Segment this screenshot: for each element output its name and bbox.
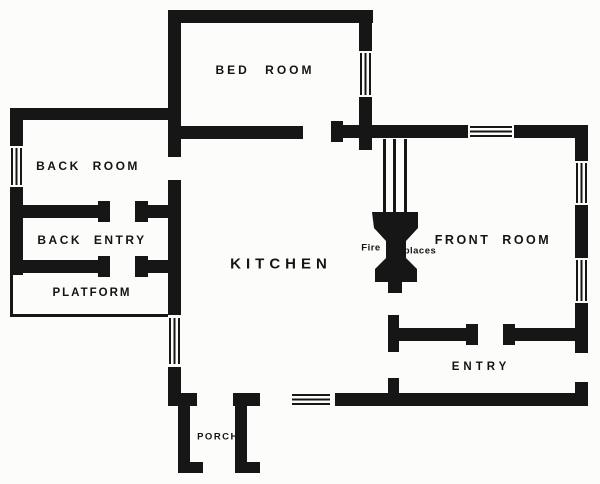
window-symbol: [468, 125, 514, 138]
room-label-entry: ENTRY: [452, 361, 511, 373]
wall-segment: [503, 328, 576, 341]
room-label-front-room: FRONT ROOM: [435, 233, 551, 247]
chimney-flue-lines: [383, 139, 407, 213]
window-symbol: [359, 51, 372, 97]
wall-segment: [10, 108, 181, 120]
room-label-back-room: BACK ROOM: [36, 159, 140, 173]
wall-segment: [575, 382, 588, 406]
wall-segment: [168, 393, 197, 406]
room-label-back-entry: BACK ENTRY: [37, 233, 146, 247]
porch-wall: [235, 393, 247, 462]
room-label-porch: PORCH: [197, 432, 239, 443]
door-jamb: [98, 256, 110, 277]
window-symbol: [10, 146, 23, 187]
door-jamb: [466, 324, 478, 345]
platform-edge: [10, 314, 170, 317]
floor-plan: BED ROOM BACK ROOM BACK ENTRY PLATFORM K…: [0, 0, 600, 484]
wall-segment: [168, 126, 303, 139]
door-jamb: [98, 201, 110, 222]
window-symbol: [575, 258, 588, 303]
fireplace-label-left: Fire: [361, 243, 380, 254]
windows: [10, 51, 588, 405]
platform-edge: [10, 275, 13, 317]
window-symbol: [292, 394, 330, 405]
wall-segment: [168, 10, 373, 23]
wall-segment: [10, 260, 110, 273]
porch-wall: [178, 462, 203, 473]
wall-segment: [331, 125, 588, 138]
wall-segment: [168, 180, 181, 406]
window-symbol: [575, 161, 588, 205]
wall-segment: [388, 378, 399, 406]
porch-wall: [235, 462, 260, 473]
window-symbol: [168, 315, 181, 367]
wall-segment: [335, 393, 588, 406]
wall-segment: [575, 125, 588, 353]
room-label-bed-room: BED ROOM: [216, 63, 315, 77]
wall-segment: [10, 108, 23, 275]
wall-segment: [396, 328, 478, 341]
wall-segment: [388, 315, 399, 352]
wall-segment: [10, 205, 110, 218]
fireplace-label-right: places: [404, 246, 437, 257]
room-label-platform: PLATFORM: [52, 287, 131, 299]
room-label-kitchen: KITCHEN: [230, 256, 332, 273]
porch-wall: [178, 406, 190, 462]
